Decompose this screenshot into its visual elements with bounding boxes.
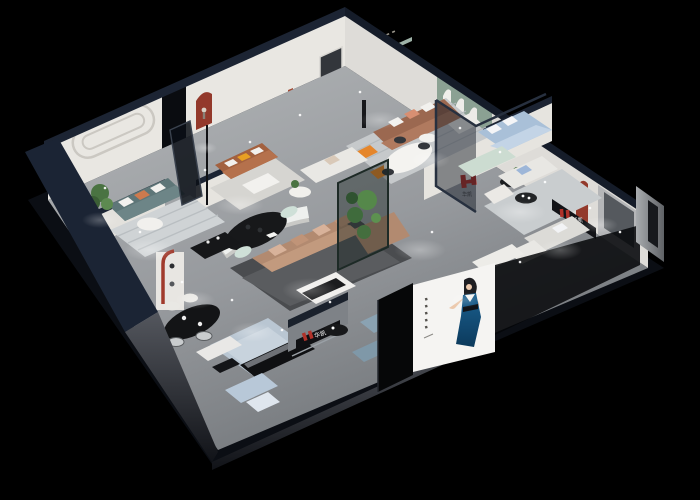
plant xyxy=(357,190,377,210)
chair-chrome xyxy=(196,332,212,341)
chair xyxy=(394,137,406,144)
round-table xyxy=(289,187,311,198)
round-table-black xyxy=(324,324,348,336)
vase xyxy=(258,228,263,233)
plant xyxy=(357,225,371,239)
plant xyxy=(347,207,363,223)
chair xyxy=(418,143,430,150)
coffee-table xyxy=(419,134,437,143)
wall-slot xyxy=(648,200,658,248)
showroom-svg: 华凯 xyxy=(0,0,700,500)
storefront-panel xyxy=(378,283,413,392)
round-table xyxy=(137,218,163,231)
showroom-render: 华凯 xyxy=(0,0,700,500)
vase xyxy=(246,225,251,230)
plant xyxy=(371,213,381,223)
plant xyxy=(346,192,358,204)
floor-lamp xyxy=(206,125,208,205)
woman-face xyxy=(466,284,472,290)
niche-sculpture xyxy=(202,108,207,113)
plant xyxy=(291,180,299,188)
